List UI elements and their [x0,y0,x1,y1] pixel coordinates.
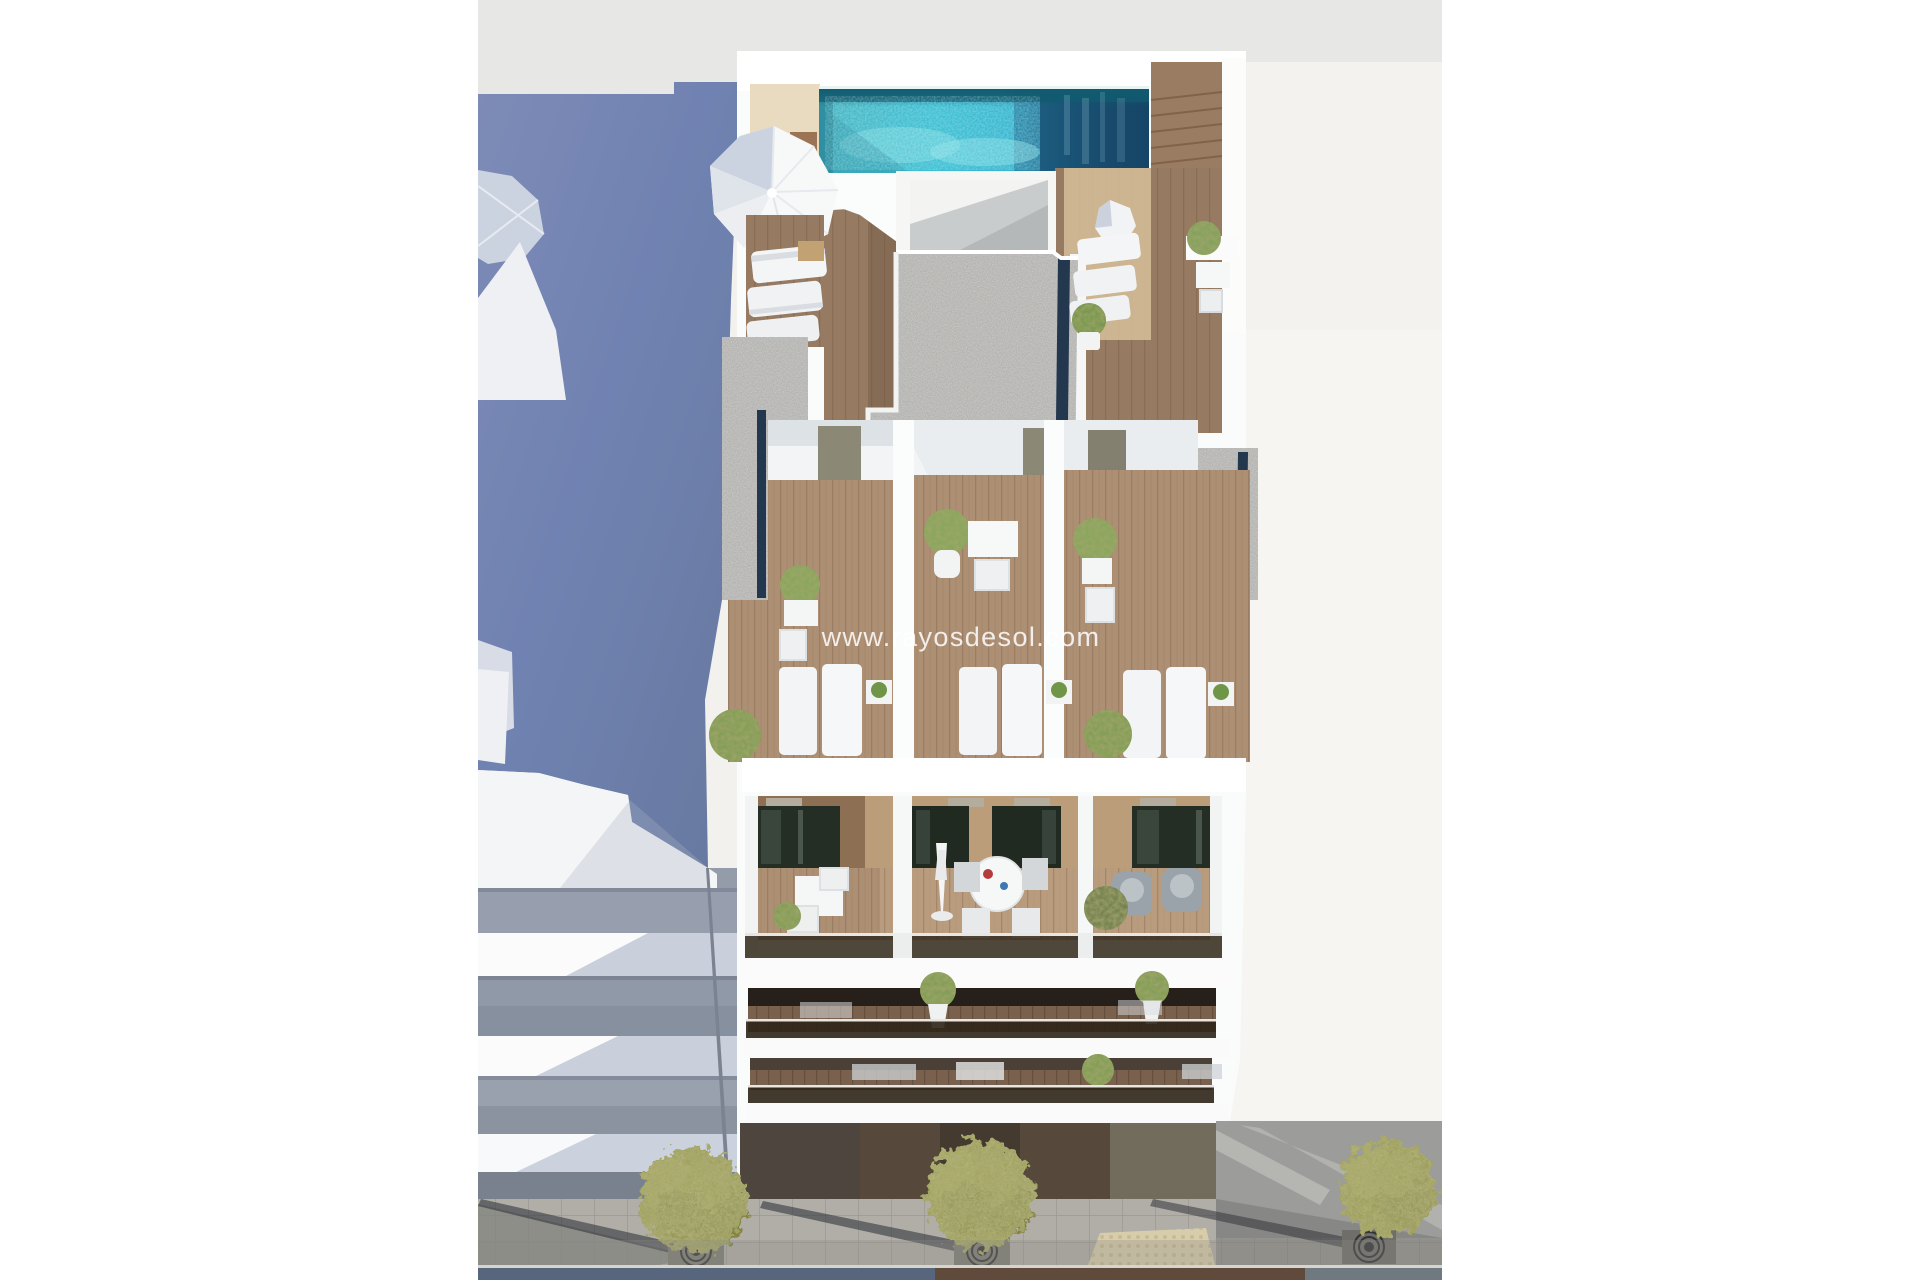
svg-text:www.rayosdesol.com: www.rayosdesol.com [821,622,1101,652]
